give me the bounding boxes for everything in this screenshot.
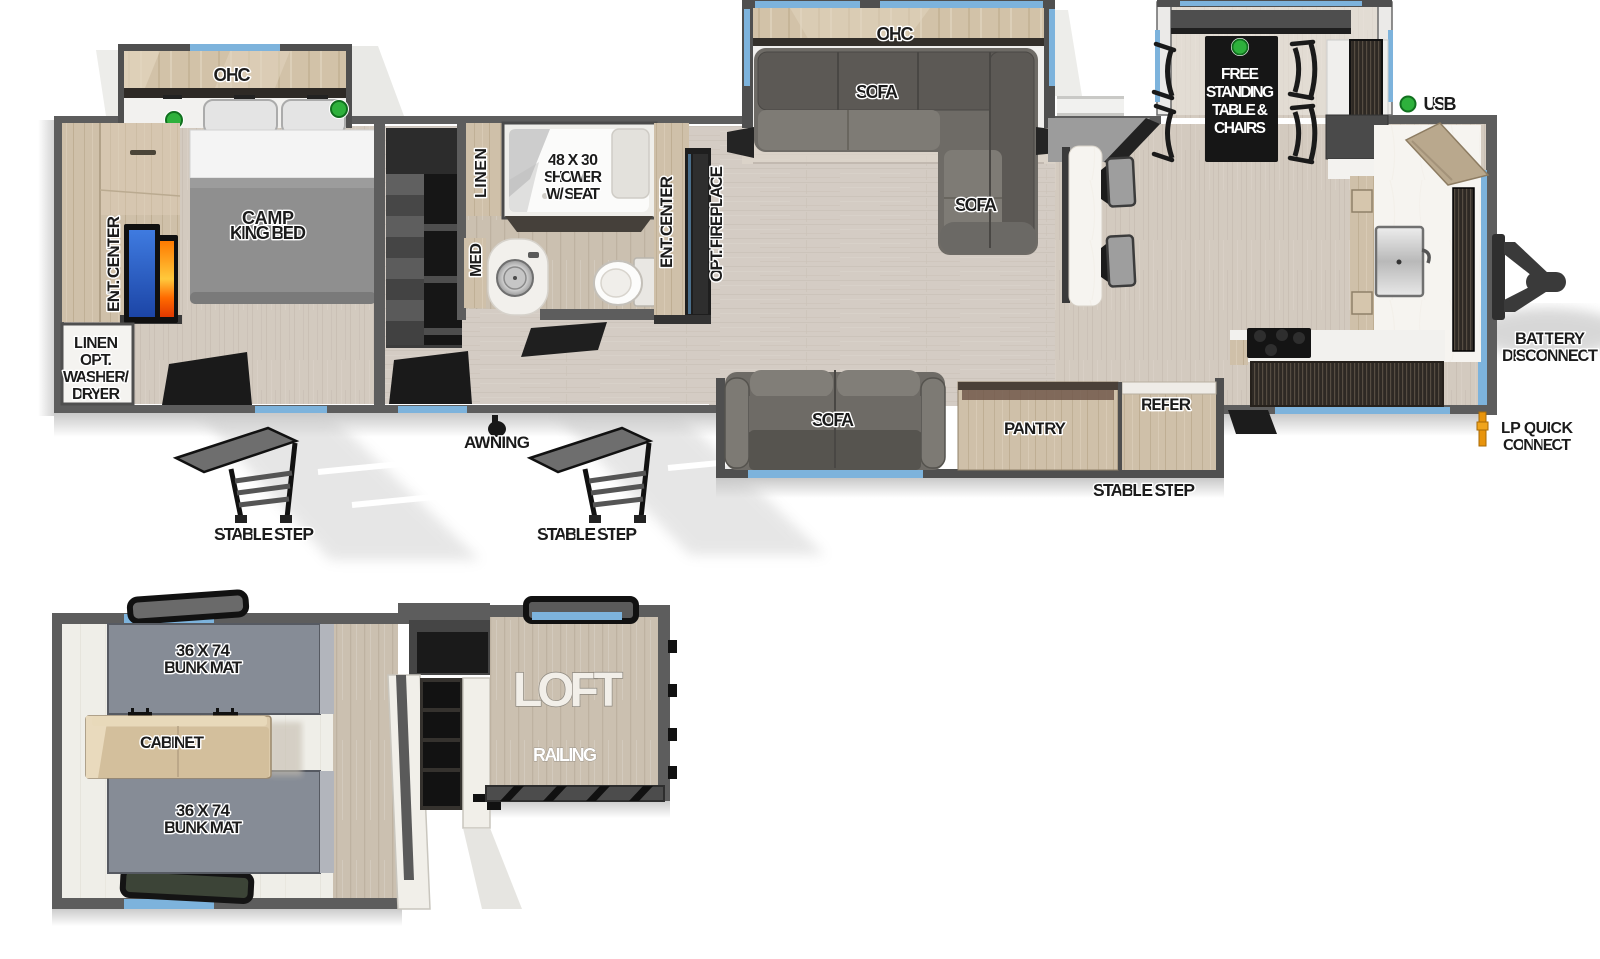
svg-text:LINEN: LINEN	[473, 148, 490, 198]
svg-text:ENT. CENTER: ENT. CENTER	[657, 176, 676, 268]
svg-text:LP QUICK: LP QUICK	[1501, 420, 1573, 437]
svg-text:48 X 30: 48 X 30	[548, 152, 598, 169]
svg-text:W/ SEAT: W/ SEAT	[546, 186, 600, 203]
svg-text:REFER: REFER	[1141, 395, 1191, 414]
svg-text:CONNECT: CONNECT	[1503, 437, 1571, 454]
svg-text:ENT. CENTER: ENT. CENTER	[104, 216, 123, 312]
svg-text:STABLE STEP: STABLE STEP	[1093, 480, 1195, 500]
svg-text:STANDING: STANDING	[1206, 84, 1274, 101]
svg-text:SHOWER: SHOWER	[544, 169, 602, 186]
svg-text:OPT.: OPT.	[80, 352, 112, 369]
svg-text:SOFA: SOFA	[812, 410, 854, 430]
svg-text:LOFT: LOFT	[513, 664, 623, 717]
svg-text:STABLE STEP: STABLE STEP	[537, 524, 637, 544]
svg-text:OHC: OHC	[214, 65, 251, 85]
svg-text:BUNK MAT: BUNK MAT	[164, 818, 243, 837]
svg-text:FREE: FREE	[1221, 66, 1259, 83]
svg-text:BUNK MAT: BUNK MAT	[164, 658, 243, 677]
svg-text:SOFA: SOFA	[955, 195, 997, 215]
svg-text:KING BED: KING BED	[230, 223, 306, 243]
svg-text:RAILING: RAILING	[533, 745, 597, 765]
svg-text:OPT. FIREPLACE: OPT. FIREPLACE	[707, 166, 726, 282]
svg-text:DISCONNECT: DISCONNECT	[1502, 347, 1598, 365]
svg-text:OHC: OHC	[877, 24, 914, 44]
svg-text:SOFA: SOFA	[856, 82, 898, 102]
svg-text:CABINET: CABINET	[140, 733, 205, 752]
svg-text:CHAIRS: CHAIRS	[1214, 120, 1266, 137]
svg-text:MED: MED	[468, 243, 485, 277]
svg-text:TABLE &: TABLE &	[1212, 102, 1268, 119]
svg-text:STABLE STEP: STABLE STEP	[214, 524, 314, 544]
svg-text:AWNING: AWNING	[464, 433, 530, 452]
svg-text:WASHER/: WASHER/	[63, 369, 130, 386]
svg-text:USB: USB	[1424, 94, 1457, 114]
svg-text:BATTERY: BATTERY	[1515, 330, 1585, 348]
svg-text:PANTRY: PANTRY	[1004, 419, 1067, 438]
svg-text:DRYER: DRYER	[72, 386, 120, 403]
svg-text:LINEN: LINEN	[74, 335, 118, 352]
